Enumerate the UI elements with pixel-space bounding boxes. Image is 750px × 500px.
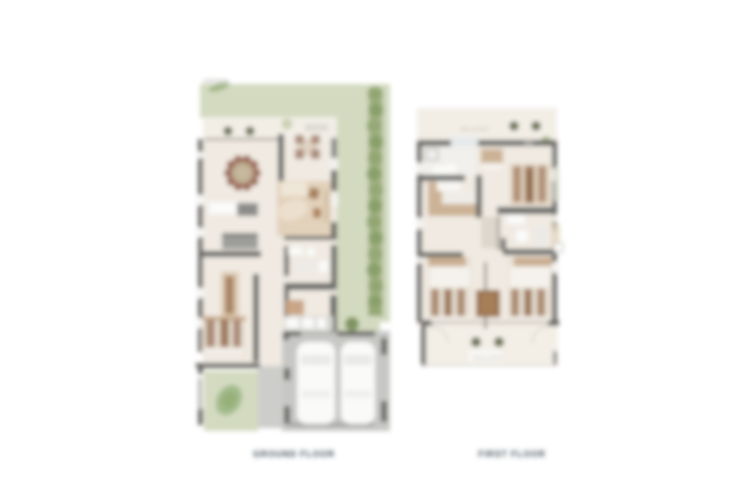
svg-text:FIRST FLOOR: FIRST FLOOR	[478, 449, 545, 459]
svg-text:BALCONY: BALCONY	[460, 127, 489, 133]
svg-text:BALCONY: BALCONY	[473, 356, 502, 362]
svg-text:GROUND FLOOR: GROUND FLOOR	[253, 449, 335, 459]
